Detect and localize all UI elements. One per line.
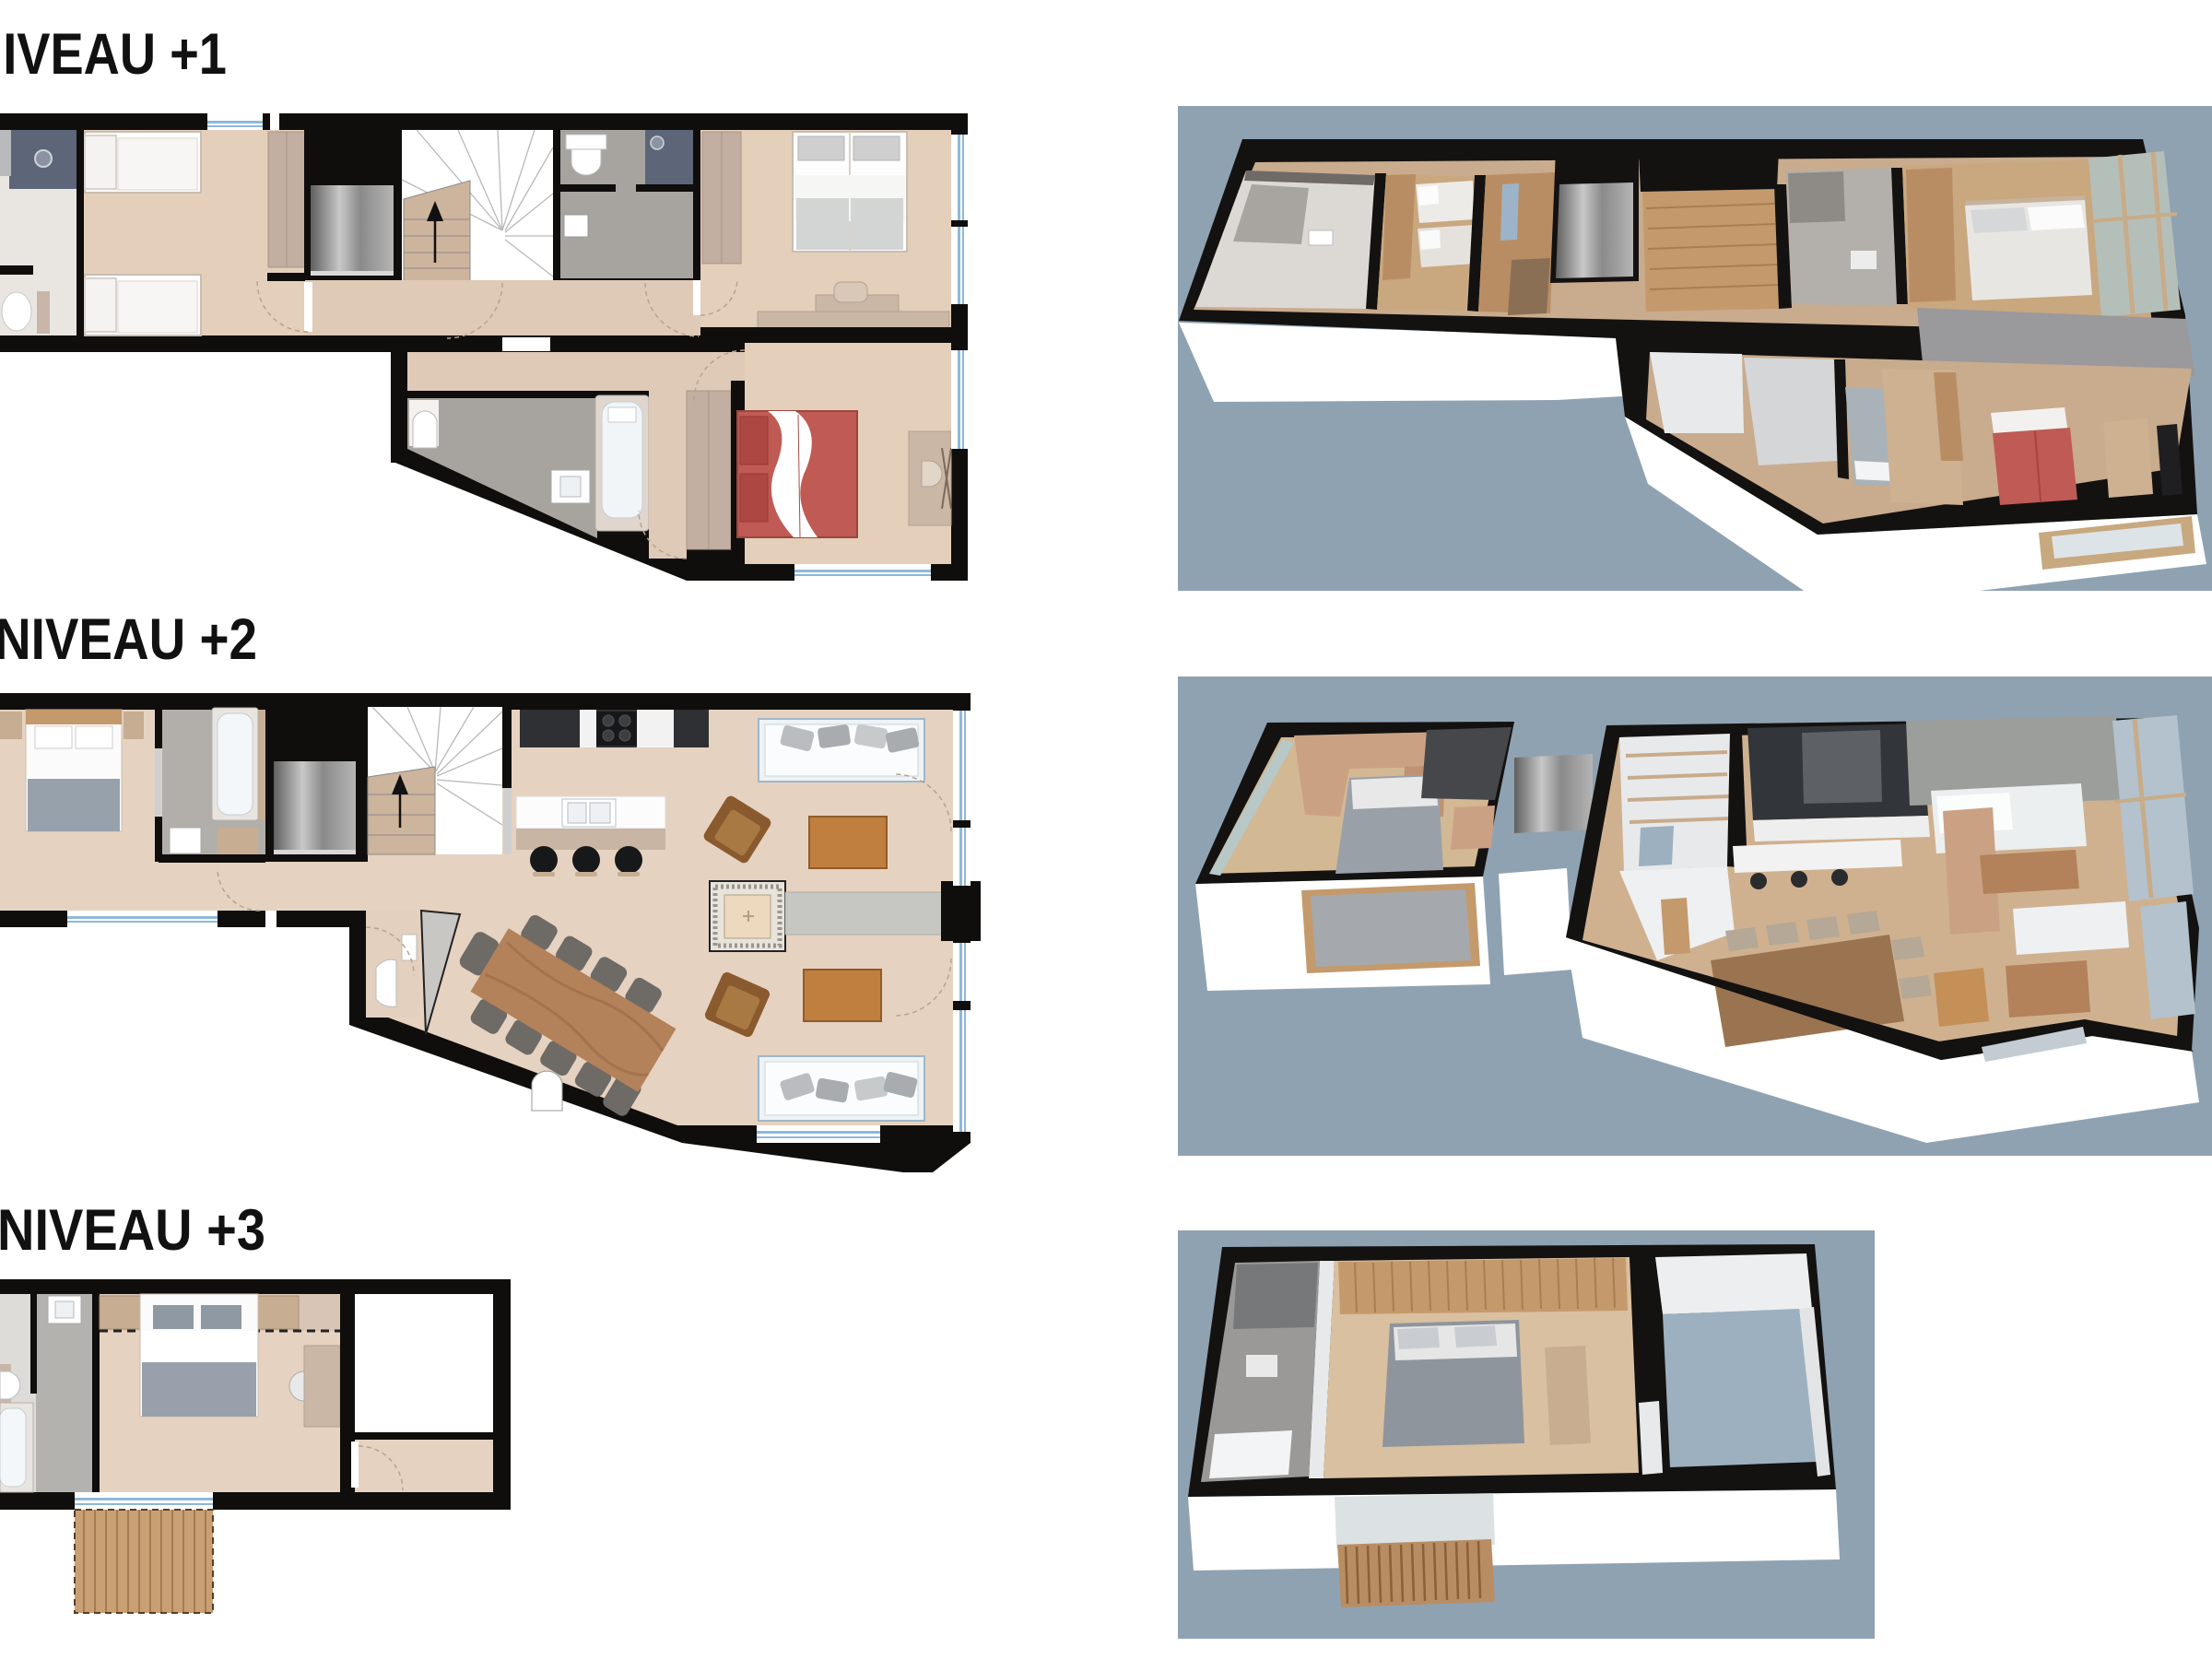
svg-text:NIVEAU +2: NIVEAU +2: [0, 607, 257, 672]
svg-text:NIVEAU +3: NIVEAU +3: [0, 1198, 265, 1263]
svg-text:NIVEAU +1: NIVEAU +1: [0, 22, 227, 87]
